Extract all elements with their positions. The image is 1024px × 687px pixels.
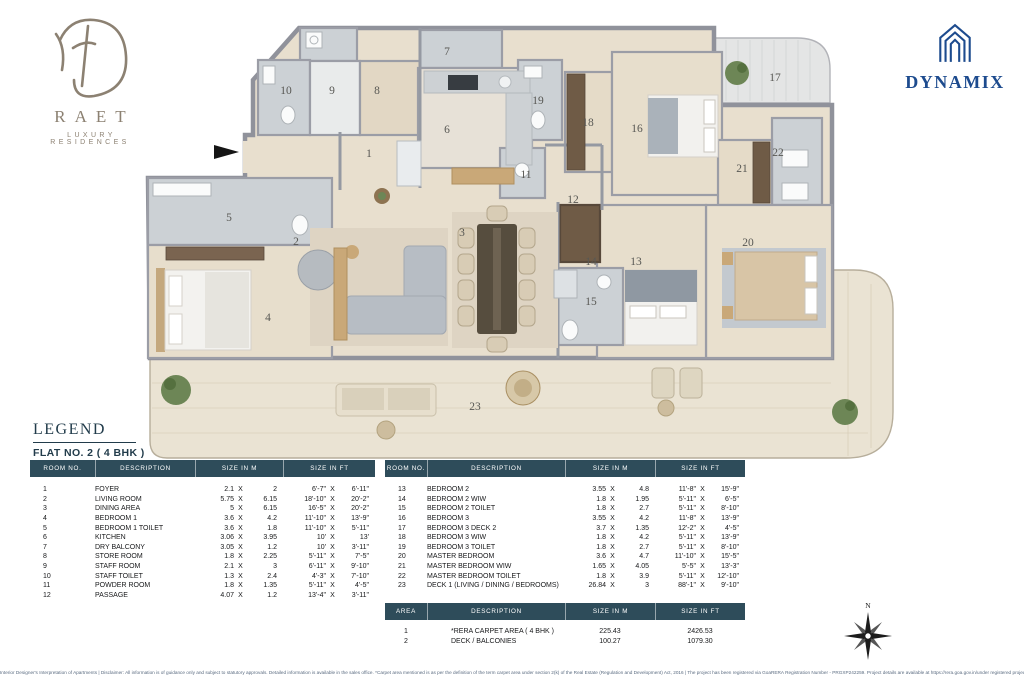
room-description: POWDER ROOM (95, 582, 195, 589)
size-m-2: 3.95 (247, 534, 283, 541)
size-in-m: 1.8 X 2.25 (195, 553, 283, 560)
brochure-page: 1 2 3 4 5 6 7 8 9 10 11 12 13 14 15 16 1… (0, 0, 1024, 687)
size-in-ft: 4'-3" X 7'-10" (283, 573, 375, 580)
room-description: FOYER (95, 486, 195, 493)
room-label-7: 7 (444, 46, 450, 58)
col-description: DESCRIPTION (95, 460, 195, 477)
table-row: 21 MASTER BEDROOM WIW 1.65 X 4.05 5'-5" … (385, 562, 745, 572)
room-label-3: 3 (459, 227, 465, 239)
x-separator: X (326, 553, 339, 560)
size-m-2: 1.2 (247, 544, 283, 551)
x-separator: X (326, 486, 339, 493)
room-no: 10 (30, 573, 95, 580)
x-separator: X (696, 515, 709, 522)
x-separator: X (606, 525, 619, 532)
size-m-1: 2.1 (195, 563, 234, 570)
size-ft-1: 12'-2" (655, 525, 696, 532)
x-separator: X (606, 486, 619, 493)
size-m-1: 1.8 (565, 534, 606, 541)
size-ft-1: 5'-11" (655, 534, 696, 541)
col-description: DESCRIPTION (427, 603, 565, 620)
size-m-2: 2.25 (247, 553, 283, 560)
size-ft-2: 8'-10" (709, 505, 745, 512)
bed1 (156, 268, 251, 352)
room-no: 22 (385, 573, 427, 580)
size-in-ft: 6'-11" X 9'-10" (283, 563, 375, 570)
x-separator: X (606, 544, 619, 551)
room-description: BEDROOM 1 TOILET (95, 525, 195, 532)
size-m-2: 4.8 (619, 486, 655, 493)
size-in-m: 5 X 6.15 (195, 505, 283, 512)
size-m-2: 4.2 (619, 534, 655, 541)
room-no: 12 (30, 592, 95, 599)
room-label-17: 17 (769, 72, 781, 84)
x-separator: X (606, 505, 619, 512)
x-separator: X (326, 515, 339, 522)
room-description: BEDROOM 3 (427, 515, 565, 522)
size-in-m: 1.8 X 2.7 (565, 505, 655, 512)
coffee-table (298, 250, 338, 290)
size-ft-2: 7'-10" (339, 573, 375, 580)
size-ft-2: 4'-5" (339, 582, 375, 589)
room-label-8: 8 (374, 85, 380, 97)
raet-wordmark: RAET (22, 107, 158, 127)
table-header: ROOM NO. DESCRIPTION SIZE IN M SIZE IN F… (30, 460, 375, 477)
size-ft-2: 6'-5" (709, 496, 745, 503)
dynamix-logo: DYNAMIX (893, 22, 1017, 93)
size-m-1: 1.65 (565, 563, 606, 570)
size-in-m: 4.07 X 1.2 (195, 592, 283, 599)
room-label-16: 16 (631, 123, 643, 135)
area-size-ft: 2426.53 (655, 628, 745, 635)
size-m-2: 3.9 (619, 573, 655, 580)
room-description: PASSAGE (95, 592, 195, 599)
room-no: 5 (30, 525, 95, 532)
col-size-m: SIZE IN M (195, 460, 283, 477)
room-staff-room (310, 61, 360, 135)
size-in-ft: 13'-4" X 3'-11" (283, 592, 375, 599)
col-room-no: ROOM NO. (385, 460, 427, 477)
room-no: 19 (385, 544, 427, 551)
size-m-1: 3.6 (195, 515, 234, 522)
size-in-ft: 5'-11" X 8'-10" (655, 505, 745, 512)
room-label-6: 6 (444, 124, 450, 136)
size-in-ft: 5'-11" X 7'-5" (283, 553, 375, 560)
size-m-1: 1.8 (565, 496, 606, 503)
area-size-ft: 1079.30 (655, 638, 745, 645)
room-description: DECK 1 (LIVING / DINING / BEDROOMS) (427, 582, 565, 589)
size-m-2: 1.35 (619, 525, 655, 532)
size-ft-1: 11'-8" (655, 486, 696, 493)
room-description: BEDROOM 2 (427, 486, 565, 493)
area-size-m: 100.27 (565, 638, 655, 645)
room-label-11: 11 (520, 169, 531, 181)
legend-divider (33, 442, 136, 443)
room-label-9: 9 (329, 85, 335, 97)
size-ft-2: 20'-2" (339, 505, 375, 512)
size-in-ft: 11'-10" X 15'-5" (655, 553, 745, 560)
room-label-22: 22 (772, 147, 784, 159)
x-separator: X (326, 525, 339, 532)
legend-table-right: ROOM NO. DESCRIPTION SIZE IN M SIZE IN F… (385, 460, 745, 591)
size-m-1: 3.6 (565, 553, 606, 560)
room-label-19: 19 (532, 95, 544, 107)
size-ft-1: 11'-10" (283, 525, 326, 532)
size-m-2: 2.4 (247, 573, 283, 580)
size-in-ft: 11'-8" X 15'-9" (655, 486, 745, 493)
size-ft-2: 9'-10" (709, 582, 745, 589)
size-in-m: 3.7 X 1.35 (565, 525, 655, 532)
table-rows: 1 *RERA CARPET AREA ( 4 BHK ) 225.43 242… (385, 627, 745, 646)
size-ft-2: 3'-11" (339, 592, 375, 599)
size-ft-1: 4'-3" (283, 573, 326, 580)
size-in-ft: 5'-5" X 13'-3" (655, 563, 745, 570)
room-bed2-wiw (560, 205, 600, 262)
tv-console (334, 248, 347, 340)
x-separator: X (234, 515, 247, 522)
room-description: MASTER BEDROOM TOILET (427, 573, 565, 580)
x-separator: X (696, 534, 709, 541)
room-no: 9 (30, 563, 95, 570)
sofa (346, 296, 446, 334)
size-in-m: 3.55 X 4.2 (565, 515, 655, 522)
table-row: 17 BEDROOM 3 DECK 2 3.7 X 1.35 12'-2" X … (385, 523, 745, 533)
x-separator: X (696, 525, 709, 532)
table-row: 14 BEDROOM 2 WIW 1.8 X 1.95 5'-11" X 6'-… (385, 495, 745, 505)
size-ft-1: 13'-4" (283, 592, 326, 599)
room-description: BEDROOM 2 TOILET (427, 505, 565, 512)
size-ft-2: 15'-9" (709, 486, 745, 493)
area-table: AREA DESCRIPTION SIZE IN M SIZE IN FT 1 … (385, 603, 745, 646)
table-row: 18 BEDROOM 3 WIW 1.8 X 4.2 5'-11" X 13'-… (385, 533, 745, 543)
size-in-ft: 11'-10" X 13'-9" (283, 515, 375, 522)
size-ft-2: 20'-2" (339, 496, 375, 503)
size-ft-2: 7'-5" (339, 553, 375, 560)
lounge-chair (680, 368, 702, 398)
size-m-1: 1.8 (565, 544, 606, 551)
room-description: DINING AREA (95, 505, 195, 512)
breakfast-counter (452, 168, 514, 184)
size-m-2: 2.7 (619, 505, 655, 512)
size-ft-1: 5'-11" (655, 496, 696, 503)
x-separator: X (696, 573, 709, 580)
flat-number: FLAT NO. 2 ( 4 BHK ) (33, 447, 145, 459)
size-in-ft: 5'-11" X 6'-5" (655, 496, 745, 503)
compass: N (838, 601, 898, 667)
size-in-ft: 10' X 13' (283, 534, 375, 541)
table-row: 3 DINING AREA 5 X 6.15 16'-5" X 20'-2" (30, 504, 375, 514)
size-m-2: 3 (247, 563, 283, 570)
room-label-14: 14 (585, 256, 597, 268)
size-in-m: 5.75 X 6.15 (195, 496, 283, 503)
size-ft-1: 10' (283, 544, 326, 551)
table-row: 1 *RERA CARPET AREA ( 4 BHK ) 225.43 242… (385, 627, 745, 637)
room-description: MASTER BEDROOM WIW (427, 563, 565, 570)
size-ft-2: 6'-11" (339, 486, 375, 493)
size-ft-1: 5'-11" (283, 582, 326, 589)
room-no: 6 (30, 534, 95, 541)
room-no: 4 (30, 515, 95, 522)
size-in-m: 1.8 X 3.9 (565, 573, 655, 580)
x-separator: X (606, 573, 619, 580)
room-no: 18 (385, 534, 427, 541)
size-m-1: 1.3 (195, 573, 234, 580)
room-label-10: 10 (280, 85, 292, 97)
size-ft-1: 10' (283, 534, 326, 541)
size-m-1: 3.6 (195, 525, 234, 532)
table-row: 1 FOYER 2.1 X 2 6'-7" X 6'-11" (30, 485, 375, 495)
x-separator: X (234, 496, 247, 503)
size-m-2: 1.2 (247, 592, 283, 599)
room-no: 3 (30, 505, 95, 512)
x-separator: X (326, 563, 339, 570)
size-ft-1: 5'-11" (655, 544, 696, 551)
table-rows: 1 FOYER 2.1 X 2 6'-7" X 6'-11" 2 (30, 485, 375, 600)
size-in-m: 1.8 X 1.35 (195, 582, 283, 589)
x-separator: X (234, 505, 247, 512)
size-m-2: 6.15 (247, 505, 283, 512)
table-rows: 13 BEDROOM 2 3.55 X 4.8 11'-8" X 15'-9" (385, 485, 745, 591)
room-no: 2 (30, 496, 95, 503)
size-in-m: 3.6 X 4.7 (565, 553, 655, 560)
size-in-ft: 11'-10" X 5'-11" (283, 525, 375, 532)
size-ft-1: 6'-11" (283, 563, 326, 570)
table-row: 19 BEDROOM 3 TOILET 1.8 X 2.7 5'-11" X 8… (385, 543, 745, 553)
table-row: 2 DECK / BALCONIES 100.27 1079.30 (385, 637, 745, 647)
room-no: 14 (385, 496, 427, 503)
fridge (397, 141, 421, 186)
size-m-1: 3.05 (195, 544, 234, 551)
x-separator: X (234, 525, 247, 532)
room-label-12: 12 (567, 194, 579, 206)
size-ft-1: 18'-10" (283, 496, 326, 503)
size-in-m: 1.65 X 4.05 (565, 563, 655, 570)
room-description: BEDROOM 3 DECK 2 (427, 525, 565, 532)
table-row: 2 LIVING ROOM 5.75 X 6.15 18'-10" X 20'-… (30, 495, 375, 505)
x-separator: X (606, 553, 619, 560)
x-separator: X (696, 505, 709, 512)
size-m-2: 6.15 (247, 496, 283, 503)
size-ft-1: 11'-8" (655, 515, 696, 522)
x-separator: X (326, 544, 339, 551)
disclaimer-text: Interior Designer's Interpretation of Ap… (0, 670, 1024, 675)
room-store (360, 61, 420, 135)
compass-north-label: N (838, 601, 898, 610)
table-row: 20 MASTER BEDROOM 3.6 X 4.7 11'-10" X 15… (385, 552, 745, 562)
raet-monogram-icon (42, 14, 138, 100)
size-m-2: 1.35 (247, 582, 283, 589)
size-m-1: 3.06 (195, 534, 234, 541)
col-size-ft: SIZE IN FT (655, 603, 745, 620)
size-ft-2: 15'-5" (709, 553, 745, 560)
room-label-13: 13 (630, 256, 642, 268)
size-in-m: 1.8 X 1.95 (565, 496, 655, 503)
size-in-ft: 5'-11" X 4'-5" (283, 582, 375, 589)
room-description: BEDROOM 3 WIW (427, 534, 565, 541)
room-description: BEDROOM 2 WIW (427, 496, 565, 503)
size-in-ft: 12'-2" X 4'-5" (655, 525, 745, 532)
x-separator: X (326, 582, 339, 589)
legend-heading: LEGEND FLAT NO. 2 ( 4 BHK ) (33, 421, 145, 459)
table-row: 13 BEDROOM 2 3.55 X 4.8 11'-8" X 15'-9" (385, 485, 745, 495)
raet-tagline: LUXURY RESIDENCES (22, 132, 158, 146)
entrance-arrow-icon (214, 145, 239, 159)
col-description: DESCRIPTION (427, 460, 565, 477)
size-in-ft: 88'-1" X 9'-10" (655, 582, 745, 589)
size-in-m: 3.6 X 1.8 (195, 525, 283, 532)
table-row: 6 KITCHEN 3.06 X 3.95 10' X 13' (30, 533, 375, 543)
col-area: AREA (385, 603, 427, 620)
size-ft-2: 13'-9" (339, 515, 375, 522)
dynamix-wordmark: DYNAMIX (893, 72, 1017, 93)
table-header: ROOM NO. DESCRIPTION SIZE IN M SIZE IN F… (385, 460, 745, 477)
room-label-23: 23 (469, 401, 481, 413)
size-m-2: 1.8 (247, 525, 283, 532)
size-in-ft: 5'-11" X 8'-10" (655, 544, 745, 551)
size-in-ft: 11'-8" X 13'-9" (655, 515, 745, 522)
room-dry-balcony (420, 30, 502, 68)
x-separator: X (696, 563, 709, 570)
room-no: 11 (30, 582, 95, 589)
legend-title: LEGEND (33, 421, 145, 439)
dynamix-icon (933, 22, 977, 64)
area-description: *RERA CARPET AREA ( 4 BHK ) (427, 628, 565, 635)
size-in-ft: 5'-11" X 13'-9" (655, 534, 745, 541)
room-no: 16 (385, 515, 427, 522)
table-row: 4 BEDROOM 1 3.6 X 4.2 11'-10" X 13'-9" (30, 514, 375, 524)
x-separator: X (696, 486, 709, 493)
size-m-1: 1.8 (195, 553, 234, 560)
size-ft-1: 5'-11" (283, 553, 326, 560)
room-label-1: 1 (366, 148, 372, 160)
size-m-1: 26.84 (565, 582, 606, 589)
size-m-2: 2 (247, 486, 283, 493)
x-separator: X (606, 496, 619, 503)
size-in-m: 1.8 X 2.7 (565, 544, 655, 551)
x-separator: X (234, 486, 247, 493)
size-ft-1: 5'-11" (655, 573, 696, 580)
table-row: 22 MASTER BEDROOM TOILET 1.8 X 3.9 5'-11… (385, 571, 745, 581)
size-m-1: 5 (195, 505, 234, 512)
size-ft-2: 13'-3" (709, 563, 745, 570)
size-m-1: 3.7 (565, 525, 606, 532)
col-size-ft: SIZE IN FT (283, 460, 375, 477)
entry-door-opening (243, 141, 250, 173)
table-row: 11 POWDER ROOM 1.8 X 1.35 5'-11" X 4'-5" (30, 581, 375, 591)
area-no: 2 (385, 638, 427, 645)
size-ft-1: 5'-5" (655, 563, 696, 570)
x-separator: X (606, 563, 619, 570)
size-in-m: 1.8 X 4.2 (565, 534, 655, 541)
size-ft-1: 11'-10" (283, 515, 326, 522)
size-ft-1: 5'-11" (655, 505, 696, 512)
x-separator: X (234, 573, 247, 580)
room-no: 13 (385, 486, 427, 493)
x-separator: X (326, 505, 339, 512)
size-m-2: 4.2 (619, 515, 655, 522)
size-m-2: 2.7 (619, 544, 655, 551)
x-separator: X (696, 544, 709, 551)
table-row: 5 BEDROOM 1 TOILET 3.6 X 1.8 11'-10" X 5… (30, 523, 375, 533)
bed2 (625, 270, 697, 345)
size-ft-1: 11'-10" (655, 553, 696, 560)
master-bed (722, 248, 826, 328)
table-row: 8 STORE ROOM 1.8 X 2.25 5'-11" X 7'-5" (30, 552, 375, 562)
x-separator: X (696, 582, 709, 589)
size-m-2: 4.2 (247, 515, 283, 522)
size-m-1: 2.1 (195, 486, 234, 493)
col-room-no: ROOM NO. (30, 460, 95, 477)
size-m-1: 1.8 (565, 505, 606, 512)
x-separator: X (326, 573, 339, 580)
size-in-m: 3.05 X 1.2 (195, 544, 283, 551)
raet-logo: RAET LUXURY RESIDENCES (22, 14, 158, 146)
size-ft-2: 8'-10" (709, 544, 745, 551)
size-ft-2: 3'-11" (339, 544, 375, 551)
room-label-2: 2 (293, 236, 299, 248)
lounge-chair (652, 368, 674, 398)
room-no: 23 (385, 582, 427, 589)
room-no: 20 (385, 553, 427, 560)
x-separator: X (234, 592, 247, 599)
table-row: 16 BEDROOM 3 3.55 X 4.2 11'-8" X 13'-9" (385, 514, 745, 524)
size-m-1: 1.8 (195, 582, 234, 589)
x-separator: X (326, 592, 339, 599)
size-in-m: 3.55 X 4.8 (565, 486, 655, 493)
size-ft-2: 4'-5" (709, 525, 745, 532)
size-in-ft: 16'-5" X 20'-2" (283, 505, 375, 512)
size-ft-1: 16'-5" (283, 505, 326, 512)
table-row: 10 STAFF TOILET 1.3 X 2.4 4'-3" X 7'-10" (30, 571, 375, 581)
area-description: DECK / BALCONIES (427, 638, 565, 645)
x-separator: X (234, 544, 247, 551)
size-in-m: 2.1 X 3 (195, 563, 283, 570)
area-no: 1 (385, 628, 427, 635)
size-in-m: 3.06 X 3.95 (195, 534, 283, 541)
room-label-4: 4 (265, 312, 271, 324)
size-ft-1: 6'-7" (283, 486, 326, 493)
size-m-2: 1.95 (619, 496, 655, 503)
room-description: STAFF ROOM (95, 563, 195, 570)
x-separator: X (326, 534, 339, 541)
room-description: KITCHEN (95, 534, 195, 541)
room-description: LIVING ROOM (95, 496, 195, 503)
room-description: BEDROOM 1 (95, 515, 195, 522)
size-in-m: 1.3 X 2.4 (195, 573, 283, 580)
area-size-m: 225.43 (565, 628, 655, 635)
x-separator: X (606, 582, 619, 589)
size-m-2: 4.05 (619, 563, 655, 570)
outdoor-table (377, 421, 395, 439)
size-ft-1: 88'-1" (655, 582, 696, 589)
size-m-1: 3.55 (565, 486, 606, 493)
size-in-ft: 5'-11" X 12'-10" (655, 573, 745, 580)
size-ft-2: 12'-10" (709, 573, 745, 580)
x-separator: X (606, 534, 619, 541)
room-label-15: 15 (585, 296, 597, 308)
col-size-m: SIZE IN M (565, 603, 655, 620)
col-size-ft: SIZE IN FT (655, 460, 745, 477)
bed3 (648, 95, 718, 157)
table-row: 15 BEDROOM 2 TOILET 1.8 X 2.7 5'-11" X 8… (385, 504, 745, 514)
table-row: 9 STAFF ROOM 2.1 X 3 6'-11" X 9'-10" (30, 562, 375, 572)
room-no: 8 (30, 553, 95, 560)
size-m-1: 1.8 (565, 573, 606, 580)
x-separator: X (606, 515, 619, 522)
room-label-21: 21 (736, 163, 748, 175)
table-row: 7 DRY BALCONY 3.05 X 1.2 10' X 3'-11" (30, 543, 375, 553)
size-m-1: 5.75 (195, 496, 234, 503)
